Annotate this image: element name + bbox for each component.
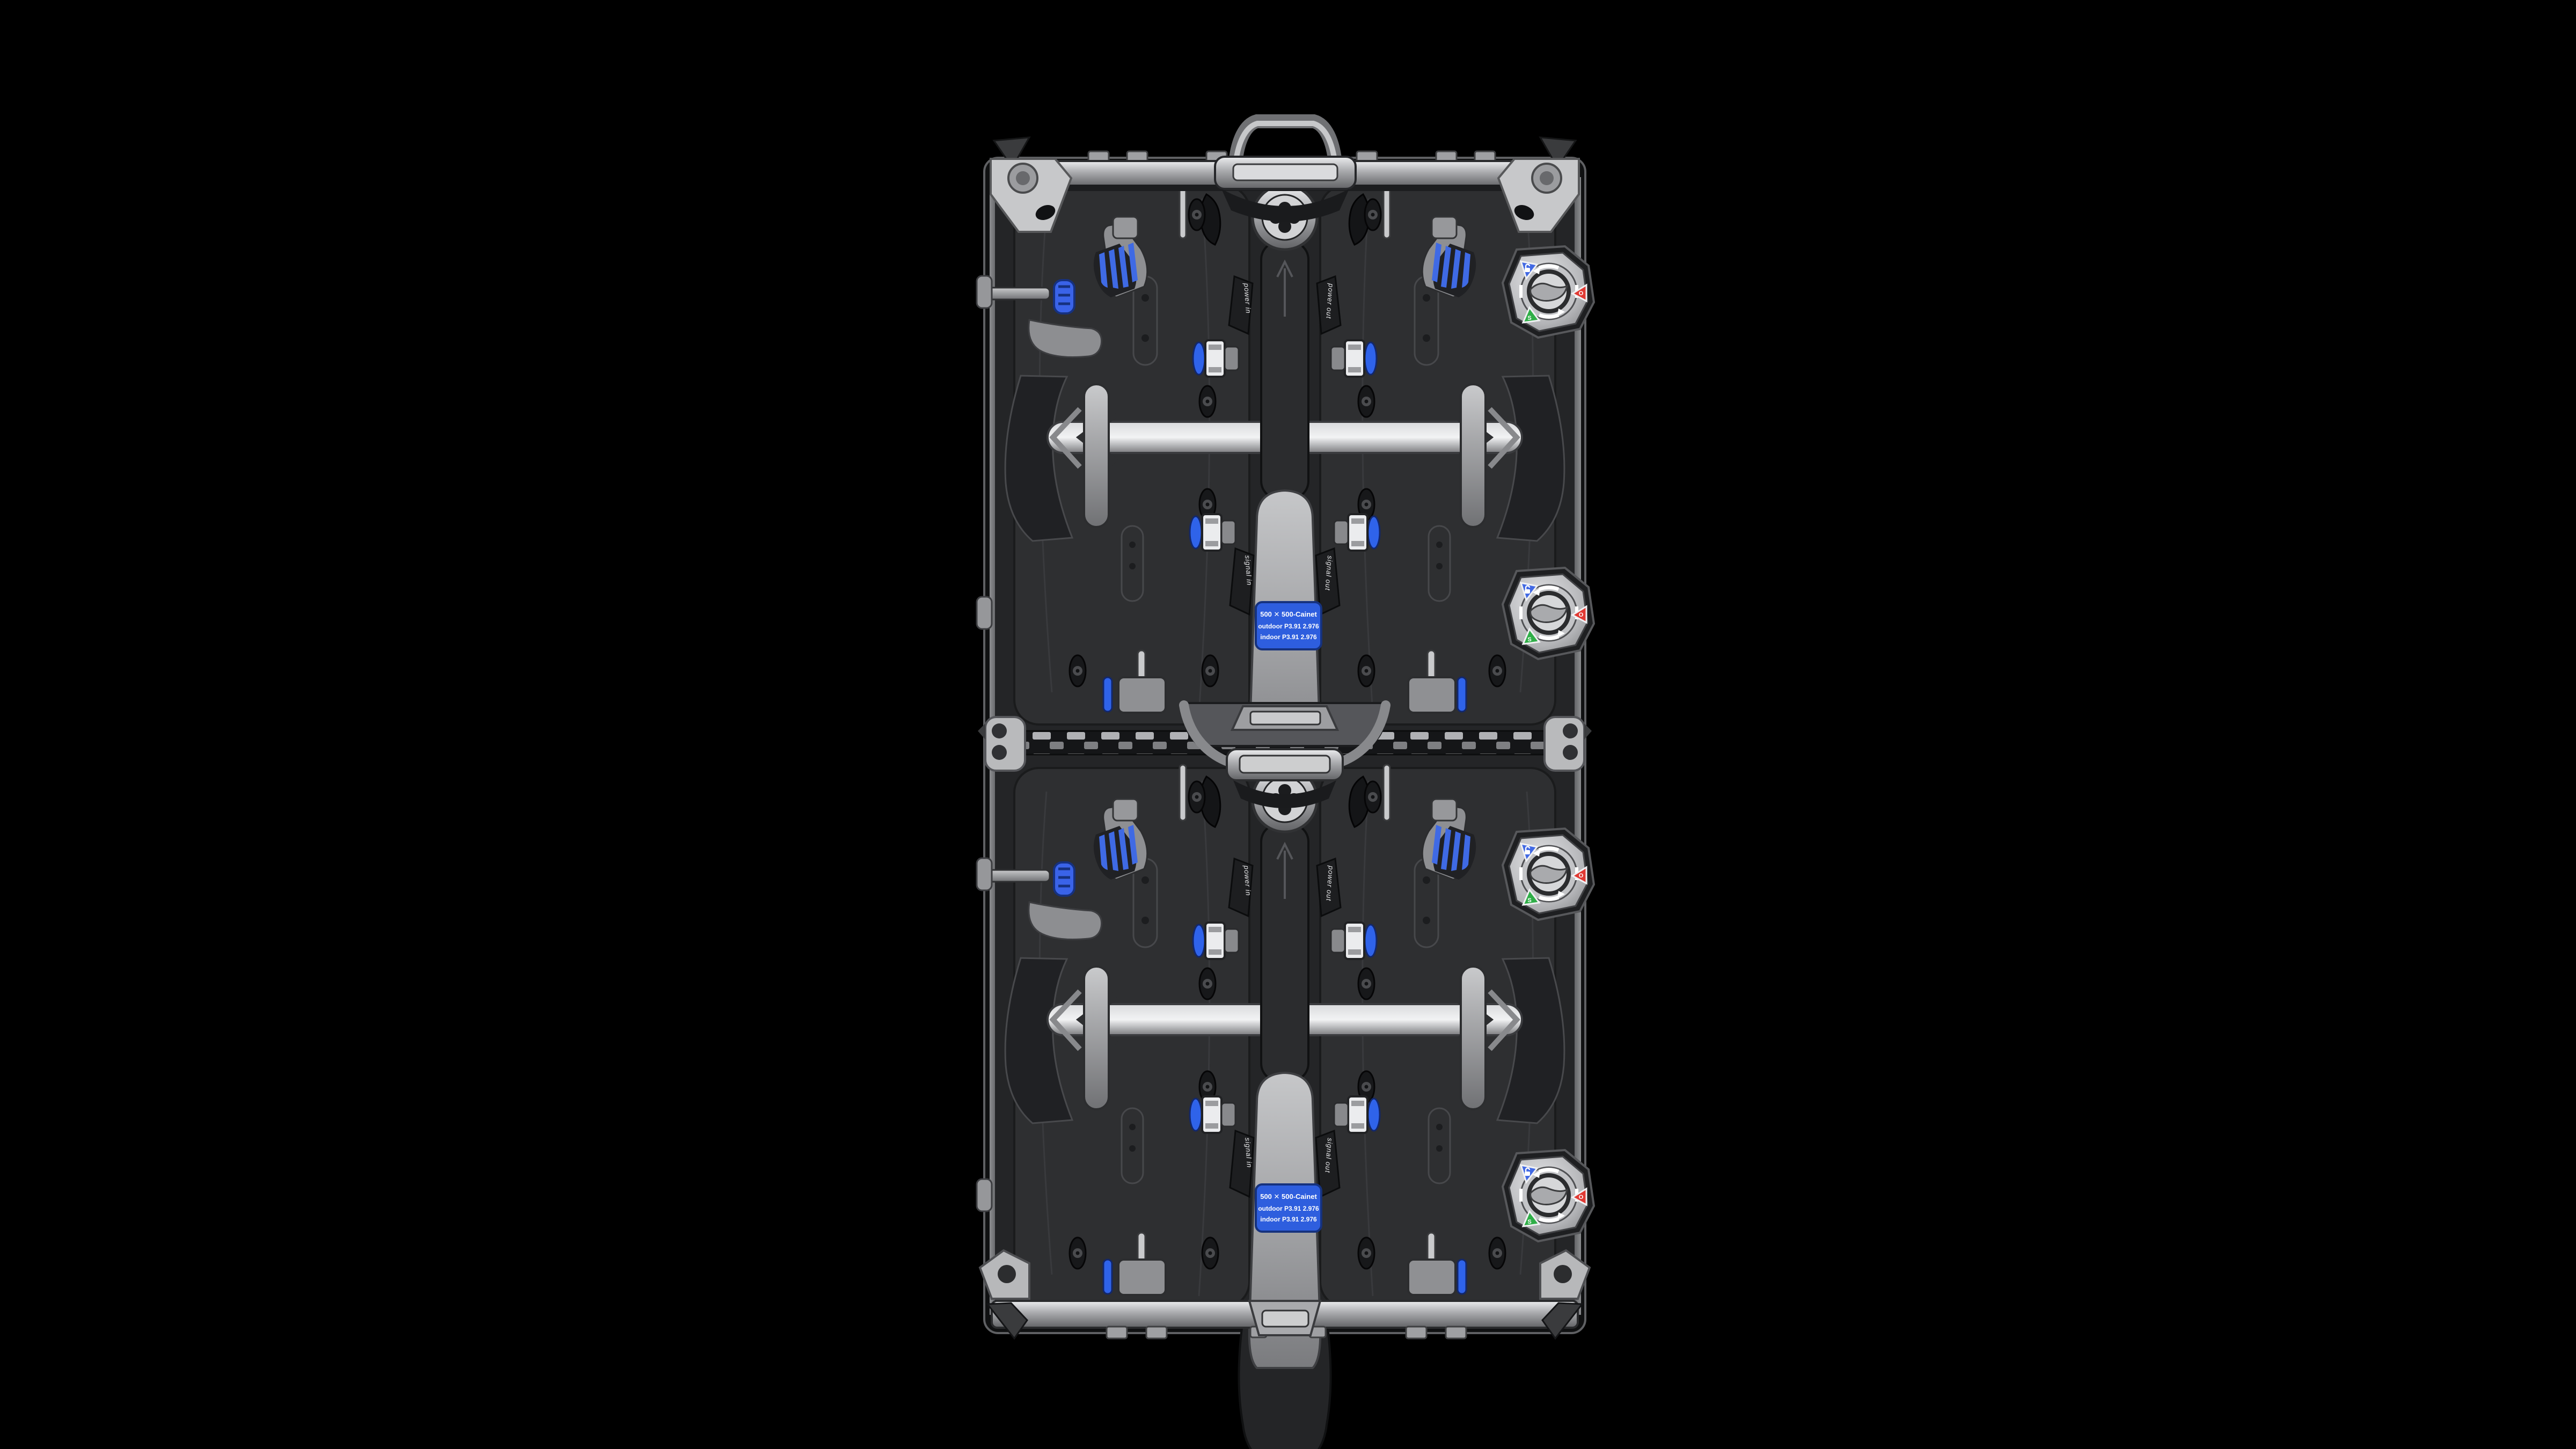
seam-hinge-left [978, 717, 1025, 771]
scene-background: O S [0, 0, 2576, 1449]
led-cabinet-render: O S [0, 0, 2576, 1449]
seam-hinge-right [1545, 717, 1592, 771]
